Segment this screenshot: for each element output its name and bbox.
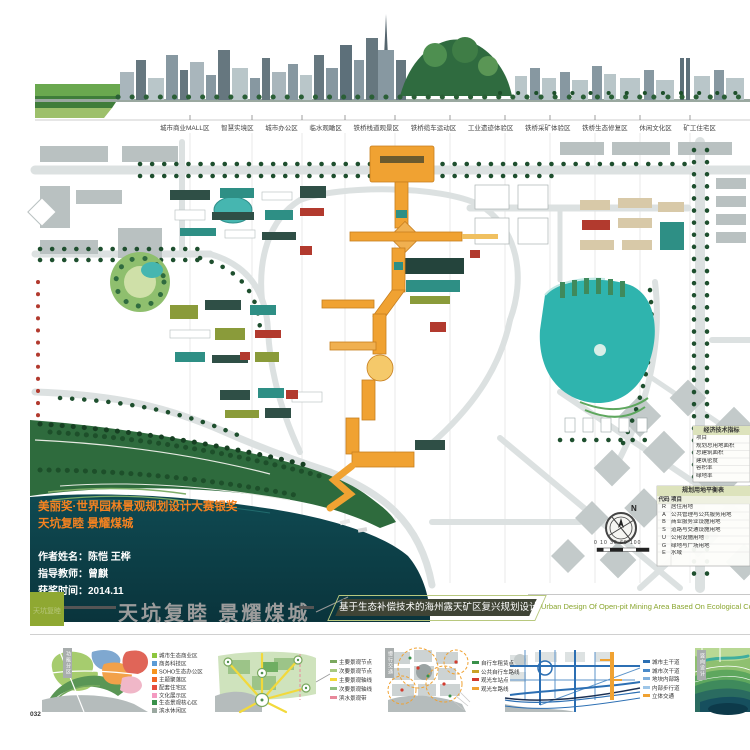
award-author: 作者姓名：陈恺 王桦 [38,549,131,566]
slow-traffic-legend: 自行车租赁点公共自行车路线观光车站点观光车路线 [472,660,520,694]
zone-label: 铁桥采矿体验区 [525,122,571,132]
panel-slow-traffic [388,648,470,712]
econ-table-row: 项目 [694,435,749,443]
econ-table-title: 经济技术指标 [694,427,749,435]
subtitle-en: Urban Design Of Open-pit Mining Area Bas… [541,602,750,611]
legend-item: 城市生态商业区 [152,653,203,661]
landuse-header-code: 代码 [657,496,671,504]
titlebar-bottom-rule [30,634,750,635]
legend-item: 文化展示区 [152,693,203,701]
panel-zoning [42,650,148,712]
road-network-legend: 城市主干道城市次干道地块内部路内部步行道立体交通 [643,659,680,702]
zone-label: 工业遗迹体验区 [468,122,514,132]
zone-label: 休闲文化区 [639,122,672,132]
page-title: 天坑复睦 景耀煤城 [118,597,311,626]
compass-north-label: N [631,504,637,513]
subtitle-banner: 基于生态补偿技术的海州露天矿区复兴规划设计 [335,599,537,616]
landuse-table-row: E水域 [657,550,749,558]
econ-table-row: 绿地率 [694,473,749,481]
board-artwork [0,0,750,750]
panel-road-network [505,650,640,712]
legend-item: SOHO生态办公区 [152,669,203,677]
landuse-table-row: U公用设施用地 [657,535,749,543]
legend-item: 城市次干道 [643,668,680,677]
econ-table-row: 总建筑面积 [694,450,749,458]
landuse-balance-table: 规划用地平衡表 代码 项目 R居住用地 A公共管理与公共服务用地 B商业服务业设… [657,487,749,558]
legend-item: 观光车路线 [472,686,520,695]
legend-item: 生态景观核心区 [152,700,203,708]
landuse-header-name: 项目 [671,496,682,504]
zone-label: 城市商业MALL区 [160,122,209,132]
skyline-section [35,14,750,120]
legend-item: 主要景观节点 [330,659,372,668]
econ-table-row: 容积率 [694,465,749,473]
legend-item: 观光车站点 [472,677,520,686]
competition-board: 城市商业MALL区智慧实境区城市办公区临水观瞰区铁桥栈道观景区铁桥缆车运动区工业… [0,0,750,750]
zone-label: 铁桥缆车运动区 [411,122,457,132]
zone-label: 城市办公区 [265,122,298,132]
legend-item: 自行车租赁点 [472,660,520,669]
legend-item: 内部步行道 [643,685,680,694]
title-rule-right [299,606,314,609]
landuse-table-row: R居住用地 [657,504,749,512]
zone-label: 临水观瞰区 [309,122,342,132]
context-buildings-nw [40,146,178,258]
landuse-table-row: A公共管理与公共服务用地 [657,512,749,520]
legend-item: 城市主干道 [643,659,680,668]
landuse-table-title: 规划用地平衡表 [657,487,749,496]
zone-label: 铁桥栈道观景区 [354,122,400,132]
landscape-legend: 主要景观节点次要景观节点主要景观轴线次要景观轴线滨水景观带 [330,659,372,704]
econ-table-row: 建筑密度 [694,458,749,466]
park-circle [110,252,170,312]
award-line2: 天坑复睦 景耀煤城 [38,516,237,533]
page-number: 032 [30,711,41,718]
compass [606,513,636,543]
landuse-table-header: 代码 项目 [657,496,749,504]
econ-table-row: 规划总用地面积 [694,443,749,451]
project-logo: 天坑复睦 [30,592,64,626]
panel-landscape-structure [215,652,330,712]
landuse-table-row: G绿地与广场用地 [657,543,749,551]
subtitle-cn: 基于生态补偿技术的海州露天矿区复兴规划设计 [339,599,533,616]
scale-bar-labels: 0 10 30 60 100 [594,540,656,546]
landuse-table-row: B商业服务业设施用地 [657,519,749,527]
economic-indicator-table: 经济技术指标 项目规划总用地面积总建筑面积建筑密度容积率绿地率 [694,427,749,480]
zone-label: 矿工住宅区 [683,122,716,132]
landuse-table-row: S道路与交通设施用地 [657,527,749,535]
legend-item: 滨水休闲区 [152,708,203,716]
award-block: 美丽奖·世界园林景观规划设计大赛银奖 天坑复睦 景耀煤城 [38,499,237,533]
legend-item: 主要景观轴线 [330,677,372,686]
orange-spine [322,146,498,467]
master-plan [28,142,750,622]
legend-item: 次要景观节点 [330,668,372,677]
legend-item: 地块内部路 [643,676,680,685]
titlebar-top-right-rule [528,594,750,595]
legend-item: 主题聚落区 [152,677,203,685]
section-zone-labels: 城市商业MALL区智慧实境区城市办公区临水观瞰区铁桥栈道观景区铁桥缆车运动区工业… [160,122,716,132]
legend-item: 立体交通 [643,693,680,702]
title-rule-left [64,606,116,609]
panel-tag-terrain: 竖向设计 [697,650,706,680]
zone-label: 智慧实境区 [221,122,254,132]
turquoise-lake [540,278,655,417]
scale-bar [597,548,649,552]
legend-item: 商务科技区 [152,661,203,669]
panel-tag-slow-traffic: 慢行交通 [385,648,394,678]
award-line1: 美丽奖·世界园林景观规划设计大赛银奖 [38,499,237,516]
legend-item: 滨水景观带 [330,695,372,704]
zone-label: 铁桥生态修复区 [582,122,628,132]
legend-item: 次要景观轴线 [330,686,372,695]
legend-item: 公共自行车路线 [472,669,520,678]
zoning-legend: 城市生态商业区商务科技区SOHO生态办公区主题聚落区配套住宅区文化展示区生态景观… [152,653,203,716]
panel-tag-zoning: 功能分区 [63,648,72,678]
award-advisor: 指导教师：曾麒 [38,566,131,583]
legend-item: 配套住宅区 [152,685,203,693]
